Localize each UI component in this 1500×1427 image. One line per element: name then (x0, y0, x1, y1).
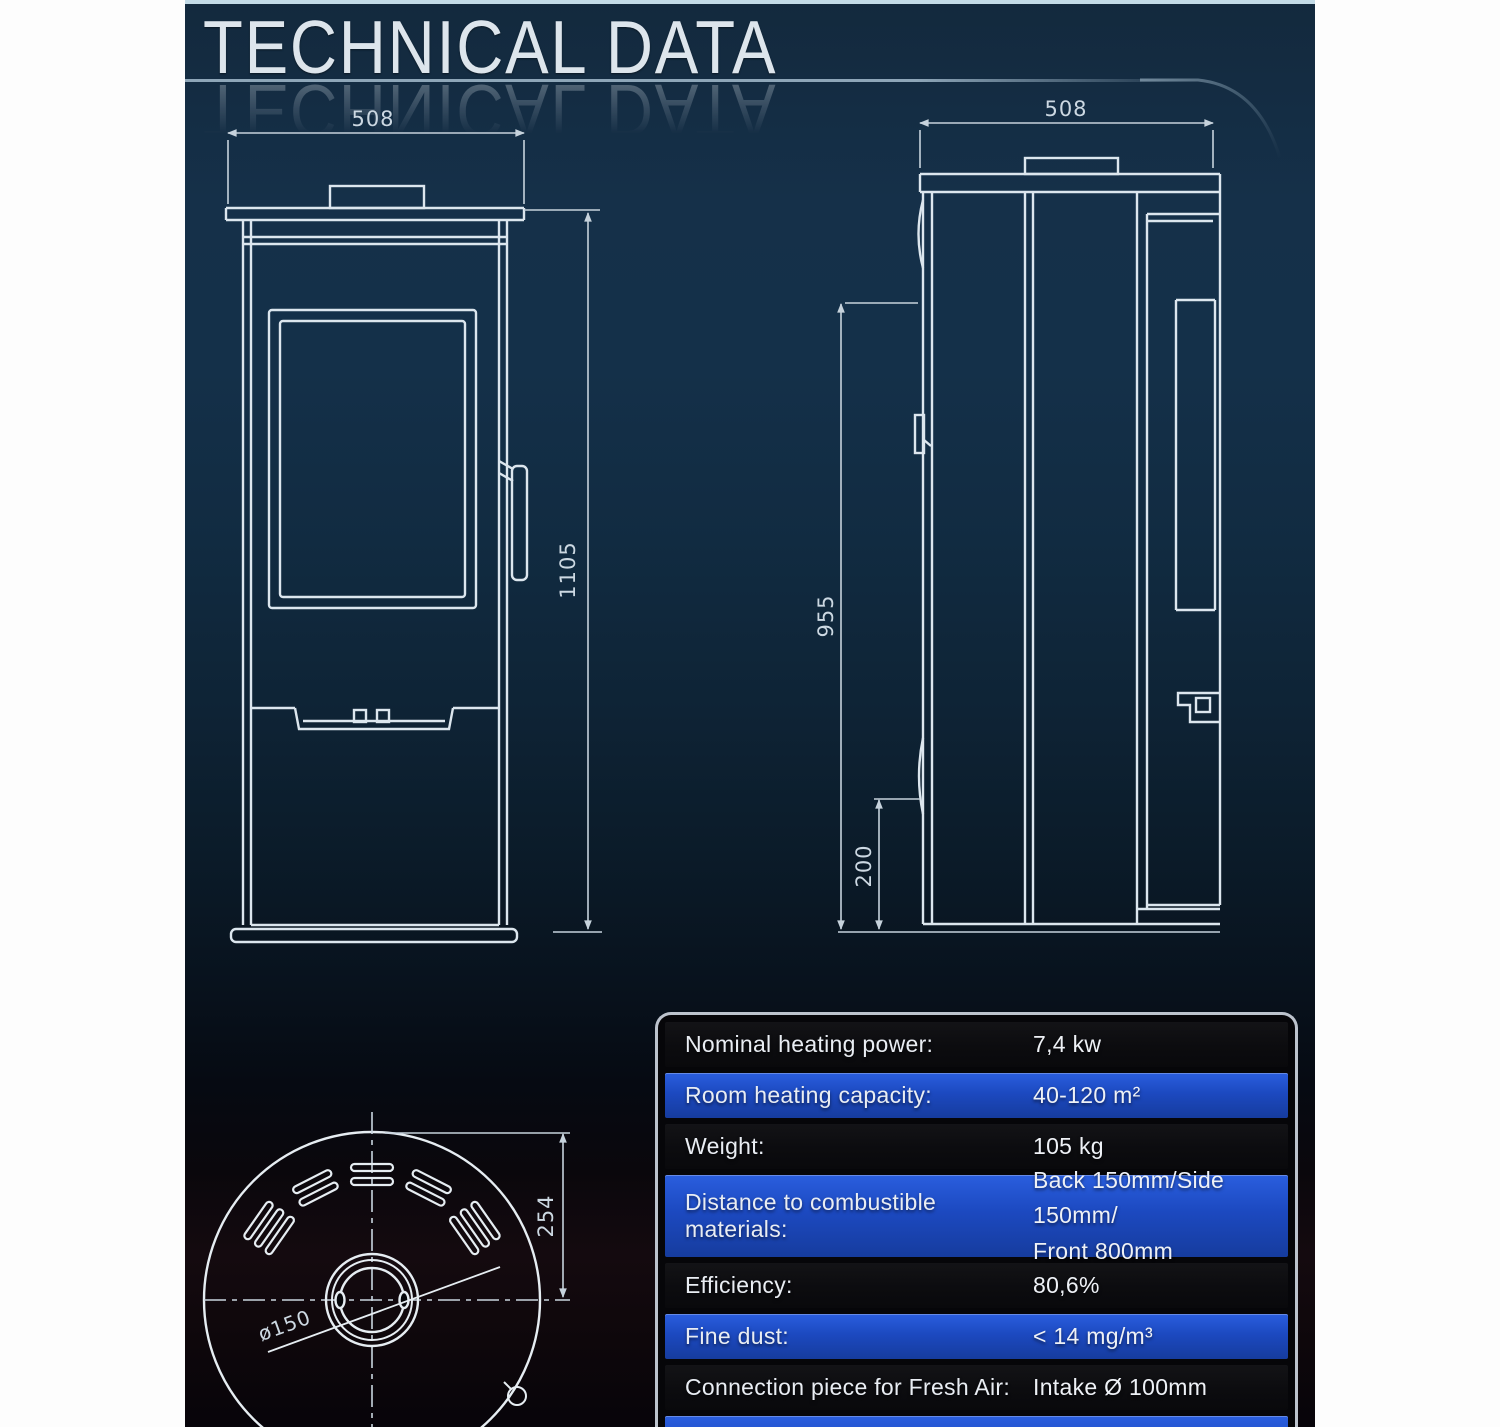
side-view-dimensions (838, 123, 1220, 932)
front-door-window-inner (280, 321, 465, 597)
spec-table: Nominal heating power: 7,4 kw Room heati… (655, 1012, 1298, 1427)
side-view (915, 158, 1220, 924)
table-row: Room heating capacity: 40-120 m² (665, 1073, 1288, 1118)
side-latch-block (1196, 698, 1210, 712)
spec-label: Efficiency: (665, 1272, 1033, 1299)
content-panel: TECHNICAL DATA TECHNICAL DATA (185, 0, 1315, 1427)
front-view (226, 186, 527, 942)
top-view (204, 1112, 570, 1427)
table-row: Efficiency: 80,6% (665, 1263, 1288, 1308)
spec-label: Room heating capacity: (665, 1082, 1033, 1109)
top-handle-stem (504, 1382, 511, 1389)
spec-value: Intake Ø 100mm (1033, 1370, 1288, 1406)
front-flue-collar (330, 186, 424, 208)
top-flue-notch-left (336, 1292, 345, 1308)
right-margin (1315, 0, 1500, 1427)
table-row: Fine dust: < 14 mg/m³ (665, 1314, 1288, 1359)
front-top-band (243, 237, 507, 244)
top-centerlines (204, 1112, 570, 1427)
side-width-dim-label: 508 (1044, 97, 1087, 121)
side-front-column (1137, 192, 1147, 924)
table-row: Connection piece for Fresh Air: Intake Ø… (665, 1365, 1288, 1410)
spec-value-line1: Back 150mm/Side 150mm/ (1033, 1163, 1288, 1234)
spec-value: Back 150mm/Side 150mm/ Front 800mm (1033, 1163, 1288, 1270)
top-flue-notch-right (400, 1292, 409, 1308)
spec-label: Distance to combustible materials: (665, 1189, 1033, 1243)
side-base-dim-label: 200 (852, 844, 876, 887)
front-base (231, 929, 517, 942)
table-row-partial (665, 1416, 1288, 1427)
side-top-plate (920, 174, 1220, 192)
spec-value: 40-120 m² (1033, 1078, 1288, 1114)
table-row: Distance to combustible materials: Back … (665, 1175, 1288, 1257)
spec-value: 7,4 kw (1033, 1027, 1288, 1063)
front-top-plate (226, 208, 524, 220)
side-height-dim-label: 955 (814, 594, 838, 637)
spec-label: Fine dust: (665, 1323, 1033, 1350)
side-base (923, 905, 1220, 924)
front-door-handle (512, 466, 527, 580)
front-view-dimensions (228, 133, 602, 932)
top-radius-dim-label: 254 (534, 1194, 558, 1237)
front-door-window (269, 310, 476, 608)
technical-data-sheet: TECHNICAL DATA TECHNICAL DATA (0, 0, 1500, 1427)
spec-label: Nominal heating power: (665, 1031, 1033, 1058)
front-body-sides (243, 220, 507, 925)
top-flue-dim-label: ø150 (255, 1305, 314, 1346)
side-glass-recess (1176, 300, 1215, 610)
front-width-dim-label: 508 (351, 107, 394, 131)
spec-value: 80,6% (1033, 1268, 1288, 1304)
side-door-top-band (1147, 214, 1220, 221)
spec-label: Weight: (665, 1133, 1033, 1160)
side-flue-collar (1025, 158, 1118, 174)
table-row: Nominal heating power: 7,4 kw (665, 1022, 1288, 1067)
left-margin (0, 0, 185, 1427)
spec-value: 105 kg (1033, 1129, 1288, 1165)
front-lower-door-recess (251, 708, 499, 729)
side-mid-column (1025, 192, 1033, 924)
spec-value: < 14 mg/m³ (1033, 1319, 1288, 1355)
spec-label: Connection piece for Fresh Air: (665, 1374, 1033, 1401)
front-height-dim-label: 1105 (556, 541, 580, 598)
